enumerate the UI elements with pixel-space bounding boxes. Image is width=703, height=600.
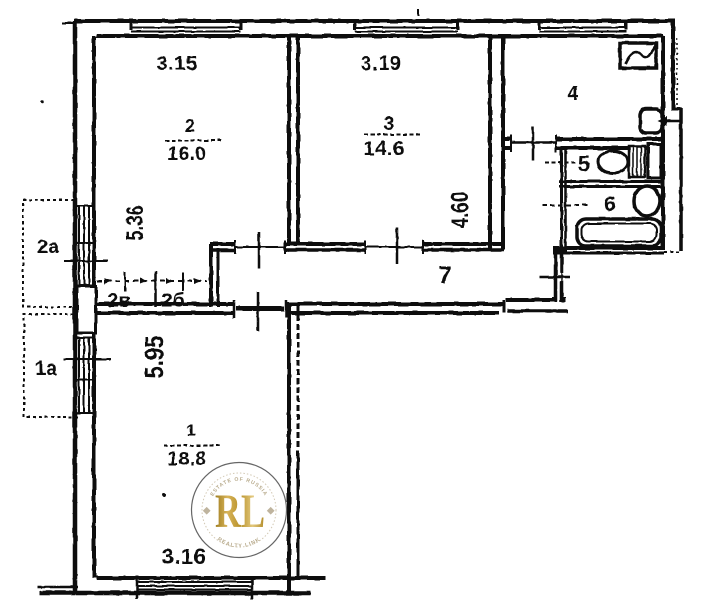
svg-text:3.19: 3.19 [361, 53, 402, 75]
svg-text:18.8: 18.8 [168, 449, 207, 470]
svg-text:RL: RL [215, 485, 265, 538]
svg-text:4.60: 4.60 [447, 192, 474, 228]
svg-text:14.6: 14.6 [364, 138, 405, 160]
svg-text:7: 7 [438, 262, 451, 289]
svg-text:5: 5 [578, 151, 590, 176]
svg-text:16.0: 16.0 [168, 144, 207, 165]
svg-text:2а: 2а [37, 237, 59, 258]
svg-text:3: 3 [384, 114, 395, 135]
svg-text:6: 6 [604, 193, 616, 216]
svg-text:2: 2 [185, 116, 195, 136]
svg-text:2б: 2б [161, 290, 184, 312]
svg-text:1: 1 [186, 421, 195, 440]
svg-text:2в: 2в [107, 290, 130, 312]
svg-text:4: 4 [567, 83, 579, 105]
svg-text:1а: 1а [35, 358, 58, 380]
svg-text:3.15: 3.15 [157, 53, 198, 75]
svg-text:5.95: 5.95 [140, 336, 169, 379]
svg-text:3.16: 3.16 [162, 544, 207, 569]
svg-text:5.36: 5.36 [123, 205, 149, 240]
